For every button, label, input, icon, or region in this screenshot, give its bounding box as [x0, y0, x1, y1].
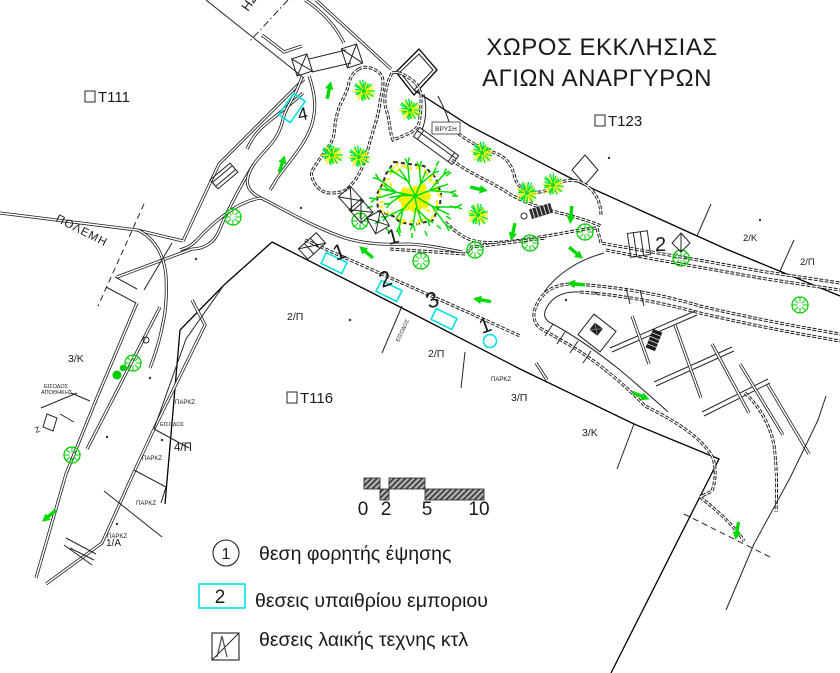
svg-text:2/Π: 2/Π [800, 257, 815, 268]
svg-text:ΠΑΡΚΖ: ΠΑΡΚΖ [491, 377, 511, 383]
svg-text:T111: T111 [98, 89, 130, 106]
svg-text:T123: T123 [608, 113, 642, 130]
svg-text:10: 10 [468, 499, 489, 520]
svg-text:0: 0 [358, 499, 369, 520]
svg-text:2/Π: 2/Π [428, 348, 444, 360]
svg-text:θεσεις υπαιθρίου εμποριου: θεσεις υπαιθρίου εμποριου [255, 590, 488, 612]
svg-text:ΑΓΙΩΝ ΑΝΑΡΓΥΡΩΝ: ΑΓΙΩΝ ΑΝΑΡΓΥΡΩΝ [482, 65, 712, 92]
svg-text:θεση φορητής έψησης: θεση φορητής έψησης [259, 543, 451, 565]
svg-text:2/Κ: 2/Κ [743, 233, 758, 244]
svg-text:θεσεις λαικής τεχνης κτλ: θεσεις λαικής τεχνης κτλ [259, 629, 468, 651]
svg-text:ΒΡΥΣΗ: ΒΡΥΣΗ [435, 126, 457, 133]
svg-text:ΕΙΣΟΔΟΣ: ΕΙΣΟΔΟΣ [160, 422, 185, 428]
svg-text:ΑΠΟΘΗΚΗΣ: ΑΠΟΘΗΚΗΣ [41, 390, 73, 396]
svg-text:2: 2 [381, 499, 392, 520]
svg-text:2/Π: 2/Π [287, 311, 303, 323]
svg-text:ΠΑΡΚΖ: ΠΑΡΚΖ [175, 400, 195, 406]
svg-text:2: 2 [655, 234, 666, 256]
svg-text:5: 5 [422, 499, 433, 520]
svg-text:ΠΑΡΚΖ: ΠΑΡΚΖ [142, 456, 162, 462]
svg-text:ΠΑΡΚΖ: ΠΑΡΚΖ [107, 534, 127, 540]
svg-text:4/Π: 4/Π [174, 442, 192, 454]
svg-text:1: 1 [222, 546, 231, 563]
svg-text:3/Κ: 3/Κ [68, 353, 84, 365]
svg-text:3/Κ: 3/Κ [582, 427, 598, 439]
svg-text:2: 2 [215, 587, 226, 608]
svg-text:ΧΩΡΟΣ ΕΚΚΛΗΣΙΑΣ: ΧΩΡΟΣ ΕΚΚΛΗΣΙΑΣ [486, 34, 717, 61]
svg-text:ΠΑΡΚΖ: ΠΑΡΚΖ [136, 501, 156, 507]
svg-text:T116: T116 [300, 390, 333, 407]
svg-text:3/Π: 3/Π [511, 392, 527, 404]
